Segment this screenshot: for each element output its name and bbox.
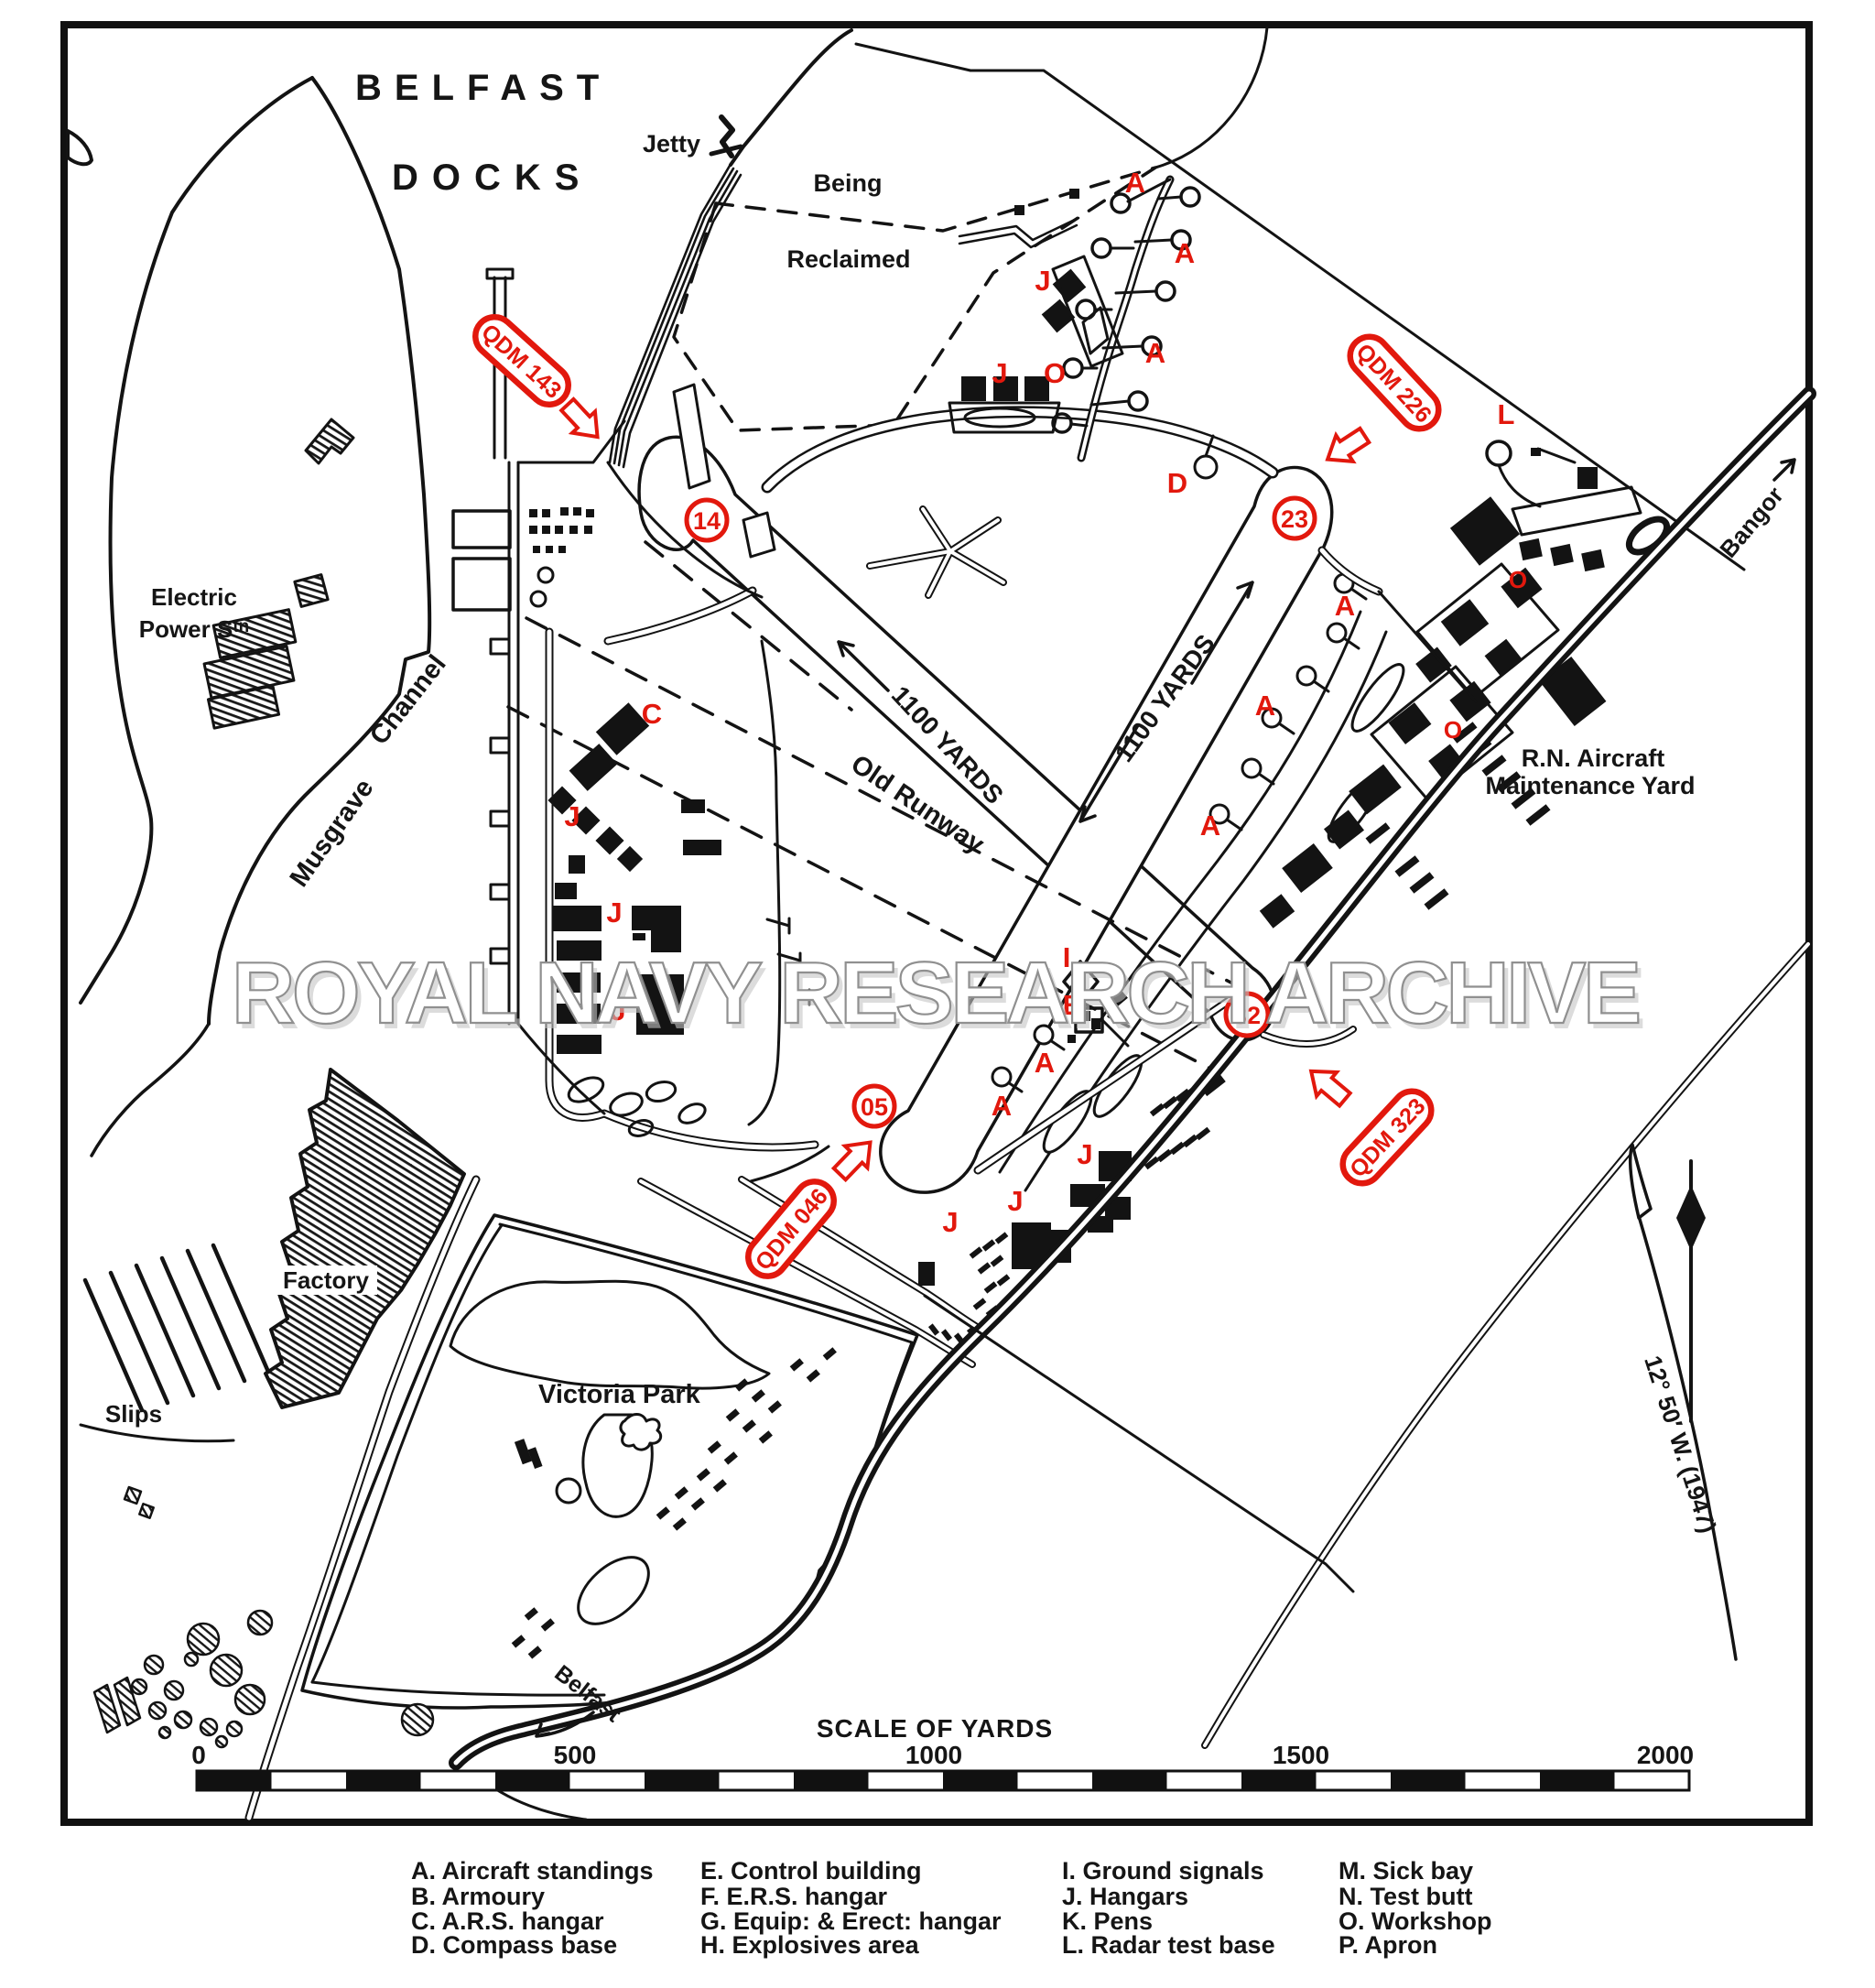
svg-text:M. Sick bay: M. Sick bay: [1339, 1857, 1473, 1885]
svg-text:H. Explosives area: H. Explosives area: [700, 1931, 920, 1959]
svg-text:D. Compass base: D. Compass base: [411, 1931, 617, 1959]
svg-text:23: 23: [1281, 505, 1308, 533]
svg-text:1000: 1000: [905, 1741, 962, 1769]
svg-text:F. E.R.S. hangar: F. E.R.S. hangar: [700, 1883, 888, 1910]
svg-text:A. Aircraft standings: A. Aircraft standings: [411, 1857, 654, 1885]
svg-text:A: A: [1175, 237, 1195, 269]
svg-text:J: J: [942, 1206, 958, 1238]
svg-text:500: 500: [554, 1741, 597, 1769]
svg-text:J. Hangars: J. Hangars: [1062, 1883, 1188, 1910]
svg-text:N. Test butt: N. Test butt: [1339, 1883, 1472, 1910]
svg-text:A: A: [1125, 167, 1145, 199]
svg-text:R.N. Aircraft: R.N. Aircraft: [1522, 744, 1665, 772]
svg-text:E. Control building: E. Control building: [700, 1857, 921, 1885]
svg-text:O: O: [1044, 357, 1066, 389]
svg-text:L. Radar test base: L. Radar test base: [1062, 1931, 1275, 1959]
svg-text:Power Stn: Power Stn: [139, 615, 250, 643]
svg-text:Slips: Slips: [105, 1400, 162, 1428]
svg-text:A: A: [1200, 809, 1220, 842]
svg-text:Being: Being: [813, 169, 882, 197]
svg-text:J: J: [992, 357, 1007, 389]
svg-text:A: A: [992, 1090, 1012, 1122]
svg-text:J: J: [1035, 265, 1050, 297]
svg-text:BELFAST: BELFAST: [355, 68, 612, 108]
svg-text:J: J: [606, 896, 622, 929]
svg-text:A: A: [1335, 590, 1355, 622]
svg-text:Maintenance Yard: Maintenance Yard: [1485, 772, 1695, 799]
svg-text:A: A: [1035, 1047, 1055, 1079]
svg-text:J: J: [1077, 1138, 1092, 1170]
svg-text:I. Ground signals: I. Ground signals: [1062, 1857, 1264, 1885]
svg-text:D: D: [1167, 467, 1187, 499]
svg-text:2000: 2000: [1637, 1741, 1694, 1769]
svg-text:O: O: [1444, 716, 1462, 744]
svg-text:A: A: [1255, 690, 1275, 722]
svg-text:ROYAL NAVY RESEARCH ARCHIVE: ROYAL NAVY RESEARCH ARCHIVE: [232, 944, 1642, 1042]
svg-text:Electric: Electric: [151, 583, 237, 611]
svg-text:Victoria Park: Victoria Park: [538, 1380, 701, 1409]
svg-text:SCALE OF YARDS: SCALE OF YARDS: [817, 1714, 1053, 1743]
svg-text:DOCKS: DOCKS: [392, 158, 592, 198]
svg-text:J: J: [564, 800, 580, 832]
svg-text:O: O: [1509, 566, 1527, 593]
svg-text:Factory: Factory: [283, 1266, 369, 1294]
svg-text:Reclaimed: Reclaimed: [786, 245, 910, 273]
svg-text:1500: 1500: [1273, 1741, 1329, 1769]
svg-text:Jetty: Jetty: [643, 130, 700, 158]
svg-text:0: 0: [191, 1741, 206, 1769]
svg-text:L: L: [1498, 398, 1515, 430]
svg-text:C: C: [642, 698, 662, 730]
svg-text:B. Armoury: B. Armoury: [411, 1883, 545, 1910]
svg-text:P. Apron: P. Apron: [1339, 1931, 1437, 1959]
svg-text:05: 05: [861, 1093, 888, 1121]
svg-text:J: J: [1007, 1185, 1023, 1217]
svg-text:14: 14: [693, 507, 721, 535]
svg-text:A: A: [1145, 337, 1165, 369]
